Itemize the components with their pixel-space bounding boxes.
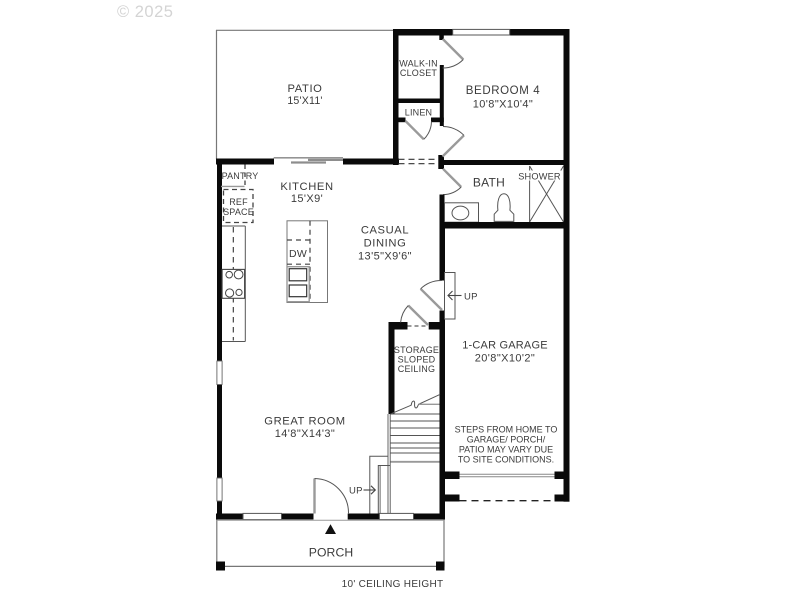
svg-text:PANTRY: PANTRY (222, 171, 259, 181)
svg-text:PATIO: PATIO (288, 83, 323, 95)
svg-text:UP: UP (464, 292, 478, 303)
svg-text:SLOPED: SLOPED (398, 355, 436, 365)
svg-text:STORAGE: STORAGE (394, 345, 439, 355)
svg-text:GARAGE/ PORCH/: GARAGE/ PORCH/ (467, 435, 546, 445)
svg-text:GREAT ROOM: GREAT ROOM (264, 416, 345, 428)
svg-text:BATH: BATH (473, 176, 505, 190)
svg-text:10'8"X10'4": 10'8"X10'4" (473, 99, 533, 111)
svg-text:15'X9': 15'X9' (291, 193, 323, 205)
svg-text:KITCHEN: KITCHEN (280, 181, 333, 193)
svg-text:UP: UP (349, 486, 363, 497)
svg-text:10' CEILING HEIGHT: 10' CEILING HEIGHT (342, 579, 444, 590)
svg-text:WALK-IN: WALK-IN (399, 59, 438, 69)
svg-text:CLOSET: CLOSET (400, 68, 438, 78)
svg-text:DINING: DINING (364, 238, 407, 250)
svg-text:© 2025: © 2025 (117, 3, 173, 21)
svg-text:CEILING: CEILING (398, 364, 435, 374)
svg-text:BEDROOM 4: BEDROOM 4 (466, 85, 540, 97)
svg-text:PORCH: PORCH (309, 546, 354, 560)
svg-text:LINEN: LINEN (405, 108, 433, 118)
svg-text:TO SITE CONDITIONS.: TO SITE CONDITIONS. (458, 455, 554, 465)
svg-text:20'8"X10'2": 20'8"X10'2" (475, 353, 535, 365)
svg-text:13'5"X9'6": 13'5"X9'6" (358, 251, 412, 263)
svg-text:REF: REF (229, 197, 248, 207)
svg-text:STEPS FROM HOME TO: STEPS FROM HOME TO (455, 425, 558, 435)
svg-text:SHOWER: SHOWER (518, 172, 561, 182)
svg-text:14'8"X14'3": 14'8"X14'3" (275, 428, 335, 440)
svg-text:SPACE: SPACE (223, 207, 254, 217)
svg-text:PATIO MAY VARY DUE: PATIO MAY VARY DUE (459, 445, 553, 455)
svg-text:CASUAL: CASUAL (361, 225, 409, 237)
svg-text:DW: DW (289, 248, 307, 260)
svg-text:1-CAR GARAGE: 1-CAR GARAGE (462, 340, 548, 352)
svg-text:15'X11': 15'X11' (287, 95, 322, 107)
